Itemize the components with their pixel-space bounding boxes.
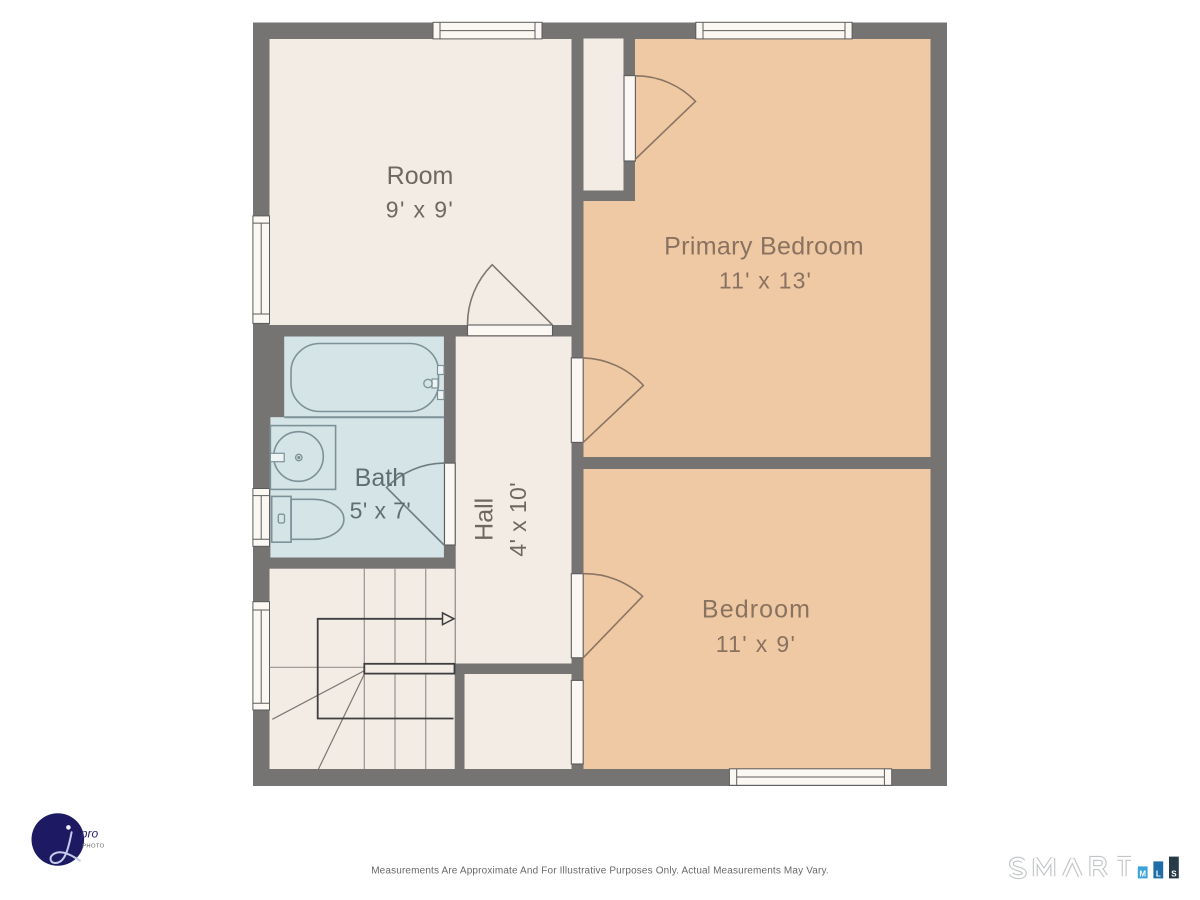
svg-text:5' x 7': 5' x 7' (350, 498, 411, 524)
svg-text:11' x 13': 11' x 13' (719, 267, 812, 293)
svg-text:PHOTO: PHOTO (82, 843, 104, 849)
svg-text:4' x 10': 4' x 10' (505, 482, 531, 557)
svg-text:S: S (1171, 870, 1177, 879)
svg-text:Hall: Hall (470, 498, 498, 541)
svg-text:pro: pro (80, 827, 99, 841)
svg-text:Measurements Are Approximate A: Measurements Are Approximate And For Ill… (371, 866, 829, 877)
svg-text:M: M (1139, 870, 1146, 879)
svg-text:9' x 9': 9' x 9' (386, 196, 454, 222)
svg-text:11' x 9': 11' x 9' (716, 631, 797, 657)
svg-text:Primary Bedroom: Primary Bedroom (664, 232, 864, 260)
svg-text:Room: Room (387, 162, 454, 190)
svg-text:Bath: Bath (355, 464, 406, 492)
svg-text:L: L (1156, 870, 1161, 879)
svg-text:Bedroom: Bedroom (702, 596, 811, 624)
